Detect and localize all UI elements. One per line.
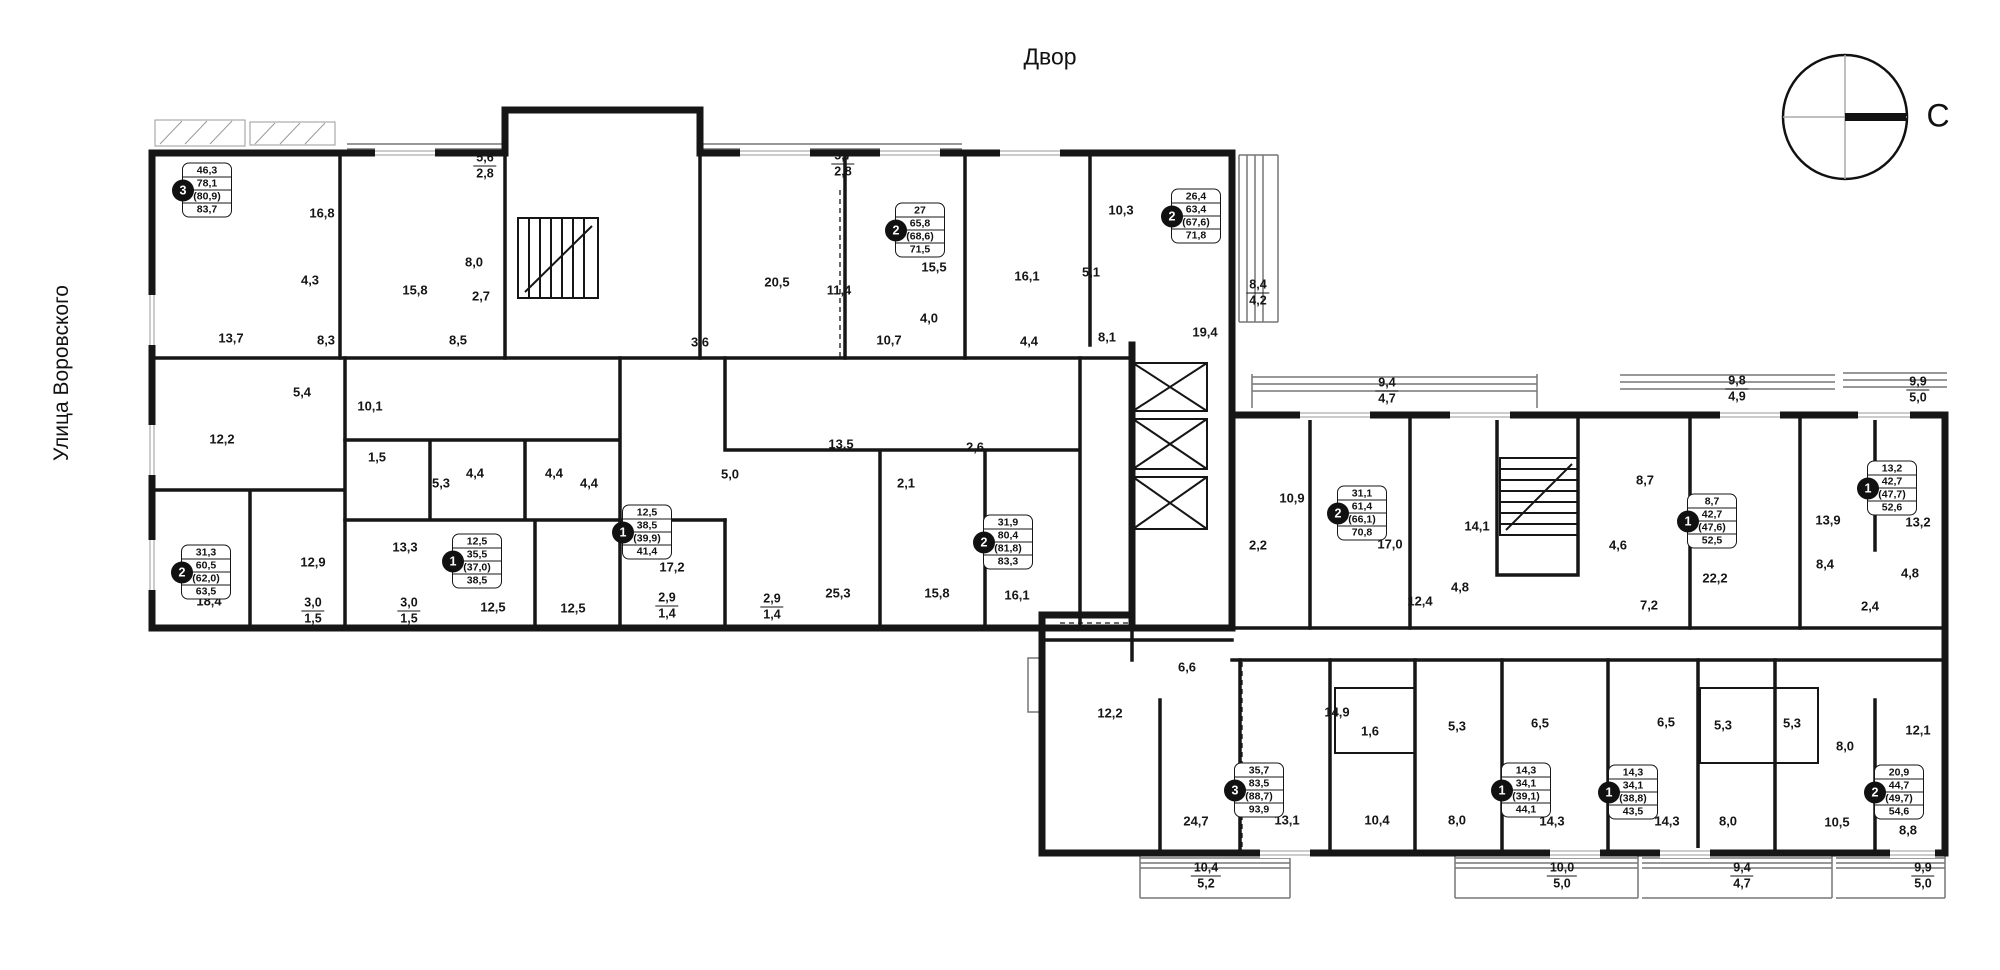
- apartment-area-value: 71,8: [1172, 230, 1220, 242]
- room-count-badge: 2: [885, 219, 907, 241]
- apartment-area-value: 31,1: [1338, 488, 1386, 501]
- room-area-label: 8,0: [1836, 739, 1854, 754]
- apartment-area-value: 54,6: [1875, 806, 1923, 818]
- balcony-area-label: 9,95,0: [1906, 375, 1929, 406]
- room-count-badge: 2: [973, 531, 995, 553]
- room-area-label: 16,1: [1014, 269, 1039, 284]
- room-area-label: 2,6: [966, 440, 984, 455]
- balcony-area-label: 9,44,7: [1375, 376, 1398, 407]
- balcony-area-top: 2,9: [760, 592, 783, 608]
- room-area-label: 24,7: [1183, 814, 1208, 829]
- apartment-area-value: 93,9: [1235, 804, 1283, 816]
- room-area-label: 17,2: [659, 560, 684, 575]
- room-area-label: 4,4: [545, 466, 563, 481]
- apartment-info-box[interactable]: 220,944,7(49,7)54,6: [1874, 765, 1924, 820]
- room-area-label: 20,5: [764, 275, 789, 290]
- room-count-badge: 1: [1491, 779, 1513, 801]
- room-area-label: 5,3: [432, 476, 450, 491]
- room-area-label: 4,4: [466, 466, 484, 481]
- balcony-area-label: 10,45,2: [1191, 861, 1221, 892]
- room-area-label: 10,9: [1279, 491, 1304, 506]
- balcony-area-bottom: 5,2: [1191, 877, 1221, 892]
- room-count-badge: 2: [171, 561, 193, 583]
- balcony-area-bottom: 2,8: [831, 165, 854, 180]
- balcony-area-label: 2,91,4: [655, 591, 678, 622]
- room-area-label: 8,5: [449, 333, 467, 348]
- balcony-area-bottom: 1,4: [655, 607, 678, 622]
- room-area-label: 4,0: [920, 311, 938, 326]
- room-area-label: 11,4: [827, 283, 852, 298]
- apartment-info-box[interactable]: 112,535,5(37,0)38,5: [452, 534, 502, 589]
- balcony-area-top: 9,4: [1375, 376, 1398, 392]
- balcony-area-label: 5,62,8: [473, 151, 496, 182]
- balcony-area-label: 8,44,2: [1246, 278, 1269, 309]
- room-area-label: 15,5: [921, 260, 946, 275]
- room-area-label: 12,4: [1407, 594, 1432, 609]
- room-count-badge: 3: [1224, 779, 1246, 801]
- room-area-label: 3,6: [691, 335, 709, 350]
- room-area-label: 8,8: [1899, 823, 1917, 838]
- balcony-area-bottom: 4,7: [1730, 877, 1753, 892]
- apartment-info-box[interactable]: 114,334,1(38,8)43,5: [1608, 765, 1658, 820]
- balcony-area-bottom: 1,5: [397, 612, 420, 627]
- balcony-area-top: 9,8: [1725, 374, 1748, 390]
- room-area-label: 1,6: [1361, 724, 1379, 739]
- room-area-label: 13,7: [218, 331, 243, 346]
- room-count-badge: 1: [1598, 781, 1620, 803]
- room-count-badge: 3: [172, 179, 194, 201]
- street-label: Улица Воровского: [50, 285, 74, 461]
- compass-north-letter: С: [1926, 98, 1949, 135]
- apartment-info-box[interactable]: 231,360,5(62,0)63,5: [181, 545, 231, 600]
- labels-layer: 16,84,315,88,02,713,78,38,53,65,410,112,…: [0, 0, 2000, 970]
- apartment-info-box[interactable]: 231,161,4(66,1)70,8: [1337, 486, 1387, 541]
- apartment-info-box[interactable]: 346,378,1(80,9)83,7: [182, 163, 232, 218]
- apartment-area-value: 12,5: [453, 536, 501, 549]
- room-count-badge: 1: [1857, 477, 1879, 499]
- balcony-area-top: 3,0: [301, 596, 324, 612]
- room-area-label: 10,3: [1108, 203, 1133, 218]
- balcony-area-bottom: 5,0: [1547, 877, 1577, 892]
- apartment-area-value: 71,5: [896, 244, 944, 256]
- balcony-area-top: 5,7: [831, 149, 854, 165]
- room-area-label: 13,9: [1815, 513, 1840, 528]
- room-area-label: 16,1: [1004, 588, 1029, 603]
- room-area-label: 22,2: [1702, 571, 1727, 586]
- apartment-area-value: 13,2: [1868, 463, 1916, 476]
- balcony-area-top: 9,9: [1906, 375, 1929, 391]
- room-area-label: 4,3: [301, 273, 319, 288]
- room-area-label: 12,1: [1905, 723, 1930, 738]
- apartment-info-box[interactable]: 231,980,4(81,8)83,3: [983, 515, 1033, 570]
- room-area-label: 16,8: [309, 206, 334, 221]
- apartment-info-box[interactable]: 226,463,4(67,6)71,8: [1171, 189, 1221, 244]
- room-area-label: 6,5: [1531, 716, 1549, 731]
- balcony-area-bottom: 2,8: [473, 167, 496, 182]
- room-area-label: 15,8: [402, 283, 427, 298]
- room-area-label: 8,7: [1636, 473, 1654, 488]
- apartment-area-value: 31,3: [182, 547, 230, 560]
- apartment-info-box[interactable]: 335,783,5(88,7)93,9: [1234, 763, 1284, 818]
- balcony-area-top: 9,4: [1730, 861, 1753, 877]
- room-area-label: 5,1: [1082, 265, 1100, 280]
- room-area-label: 13,3: [392, 540, 417, 555]
- balcony-area-bottom: 5,0: [1911, 877, 1934, 892]
- room-area-label: 12,9: [300, 555, 325, 570]
- room-area-label: 13,2: [1905, 515, 1930, 530]
- room-area-label: 5,3: [1783, 716, 1801, 731]
- apartment-area-value: 52,5: [1688, 535, 1736, 547]
- room-area-label: 8,0: [1719, 814, 1737, 829]
- room-area-label: 10,5: [1824, 815, 1849, 830]
- apartment-area-value: 83,7: [183, 204, 231, 216]
- page-title: Двор: [1023, 44, 1076, 71]
- room-area-label: 13,5: [828, 437, 853, 452]
- room-area-label: 12,5: [560, 601, 585, 616]
- room-area-label: 1,5: [368, 450, 386, 465]
- apartment-area-value: 63,5: [182, 586, 230, 598]
- apartment-area-value: 12,5: [623, 507, 671, 520]
- room-count-badge: 1: [1677, 510, 1699, 532]
- room-area-label: 4,4: [580, 476, 598, 491]
- room-area-label: 8,0: [465, 255, 483, 270]
- balcony-area-bottom: 1,5: [301, 612, 324, 627]
- balcony-area-top: 10,4: [1191, 861, 1221, 877]
- room-area-label: 25,3: [825, 586, 850, 601]
- room-area-label: 5,0: [721, 467, 739, 482]
- balcony-area-bottom: 4,2: [1246, 294, 1269, 309]
- apartment-area-value: 20,9: [1875, 767, 1923, 780]
- room-count-badge: 2: [1327, 502, 1349, 524]
- room-area-label: 2,2: [1249, 538, 1267, 553]
- balcony-area-bottom: 5,0: [1906, 391, 1929, 406]
- room-count-badge: 2: [1161, 205, 1183, 227]
- apartment-area-value: 14,3: [1502, 765, 1550, 778]
- balcony-area-top: 9,9: [1911, 861, 1934, 877]
- apartment-area-value: 52,6: [1868, 502, 1916, 514]
- room-area-label: 12,5: [480, 600, 505, 615]
- room-area-label: 7,2: [1640, 598, 1658, 613]
- balcony-area-label: 9,95,0: [1911, 861, 1934, 892]
- room-area-label: 10,4: [1364, 813, 1389, 828]
- balcony-area-label: 3,01,5: [301, 596, 324, 627]
- balcony-area-label: 9,84,9: [1725, 374, 1748, 405]
- balcony-area-top: 3,0: [397, 596, 420, 612]
- room-count-badge: 1: [442, 550, 464, 572]
- apartment-area-value: 83,3: [984, 556, 1032, 568]
- apartment-info-box[interactable]: 112,538,5(39,9)41,4: [622, 505, 672, 560]
- floor-plan: 16,84,315,88,02,713,78,38,53,65,410,112,…: [0, 0, 2000, 970]
- apartment-area-value: 27: [896, 205, 944, 218]
- apartment-area-value: 35,7: [1235, 765, 1283, 778]
- room-area-label: 15,8: [924, 586, 949, 601]
- apartment-area-value: 26,4: [1172, 191, 1220, 204]
- room-area-label: 14,1: [1464, 519, 1489, 534]
- room-area-label: 2,4: [1861, 599, 1879, 614]
- room-area-label: 8,1: [1098, 330, 1116, 345]
- room-area-label: 4,6: [1609, 538, 1627, 553]
- room-area-label: 8,3: [317, 333, 335, 348]
- room-area-label: 5,3: [1714, 718, 1732, 733]
- balcony-area-bottom: 4,9: [1725, 390, 1748, 405]
- room-area-label: 8,0: [1448, 813, 1466, 828]
- room-area-label: 4,8: [1901, 566, 1919, 581]
- apartment-area-value: 38,5: [453, 575, 501, 587]
- apartment-area-value: 14,3: [1609, 767, 1657, 780]
- room-area-label: 14,9: [1324, 705, 1349, 720]
- balcony-area-label: 9,44,7: [1730, 861, 1753, 892]
- apartment-area-value: 70,8: [1338, 527, 1386, 539]
- balcony-area-label: 10,05,0: [1547, 861, 1577, 892]
- room-area-label: 12,2: [209, 432, 234, 447]
- apartment-info-box[interactable]: 18,742,7(47,6)52,5: [1687, 494, 1737, 549]
- balcony-area-top: 5,6: [473, 151, 496, 167]
- room-area-label: 12,2: [1097, 706, 1122, 721]
- apartment-area-value: 43,5: [1609, 806, 1657, 818]
- apartment-info-box[interactable]: 114,334,1(39,1)44,1: [1501, 763, 1551, 818]
- room-count-badge: 1: [612, 521, 634, 543]
- balcony-area-bottom: 1,4: [760, 608, 783, 623]
- room-count-badge: 2: [1864, 781, 1886, 803]
- room-area-label: 19,4: [1192, 325, 1217, 340]
- room-area-label: 6,5: [1657, 715, 1675, 730]
- room-area-label: 2,7: [472, 289, 490, 304]
- balcony-area-top: 2,9: [655, 591, 678, 607]
- balcony-area-label: 5,72,8: [831, 149, 854, 180]
- apartment-area-value: 46,3: [183, 165, 231, 178]
- apartment-info-box[interactable]: 22765,8(68,6)71,5: [895, 203, 945, 258]
- balcony-area-label: 3,01,5: [397, 596, 420, 627]
- room-area-label: 6,6: [1178, 660, 1196, 675]
- room-area-label: 14,3: [1654, 814, 1679, 829]
- balcony-area-bottom: 4,7: [1375, 392, 1398, 407]
- apartment-area-value: 31,9: [984, 517, 1032, 530]
- balcony-area-top: 8,4: [1246, 278, 1269, 294]
- balcony-area-top: 10,0: [1547, 861, 1577, 877]
- apartment-area-value: 8,7: [1688, 496, 1736, 509]
- room-area-label: 10,7: [876, 333, 901, 348]
- room-area-label: 5,4: [293, 385, 311, 400]
- room-area-label: 4,4: [1020, 334, 1038, 349]
- apartment-info-box[interactable]: 113,242,7(47,7)52,6: [1867, 461, 1917, 516]
- room-area-label: 5,3: [1448, 719, 1466, 734]
- room-area-label: 8,4: [1816, 557, 1834, 572]
- apartment-area-value: 41,4: [623, 546, 671, 558]
- apartment-area-value: 44,1: [1502, 804, 1550, 816]
- room-area-label: 10,1: [357, 399, 382, 414]
- room-area-label: 2,1: [897, 476, 915, 491]
- balcony-area-label: 2,91,4: [760, 592, 783, 623]
- room-area-label: 4,8: [1451, 580, 1469, 595]
